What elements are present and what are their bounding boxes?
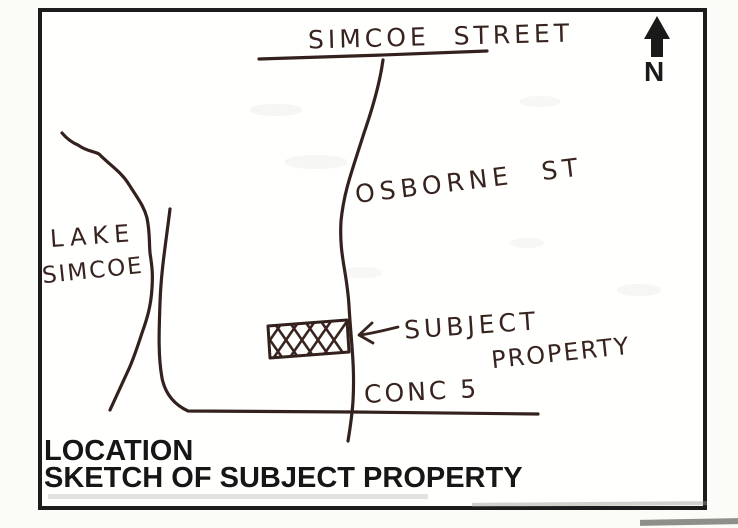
north-arrow-icon [644, 16, 670, 57]
conc5-label: CONC 5 [363, 374, 480, 409]
caption-line2: SKETCH OF SUBJECT PROPERTY [44, 465, 523, 492]
location-sketch-map: SIMCOE STREET OSBORNE ST LAKE SIMCOE SUB… [38, 8, 707, 510]
lake-label-line1: LAKE [49, 219, 136, 253]
map-caption: LOCATION SKETCH OF SUBJECT PROPERTY [44, 438, 523, 492]
scan-artifact [640, 518, 738, 526]
scan-artifact [48, 494, 428, 499]
subject-property-rect [238, 317, 350, 363]
left-arrow-icon [359, 323, 398, 343]
caption-line1: LOCATION [44, 438, 523, 465]
north-label: N [644, 56, 664, 88]
